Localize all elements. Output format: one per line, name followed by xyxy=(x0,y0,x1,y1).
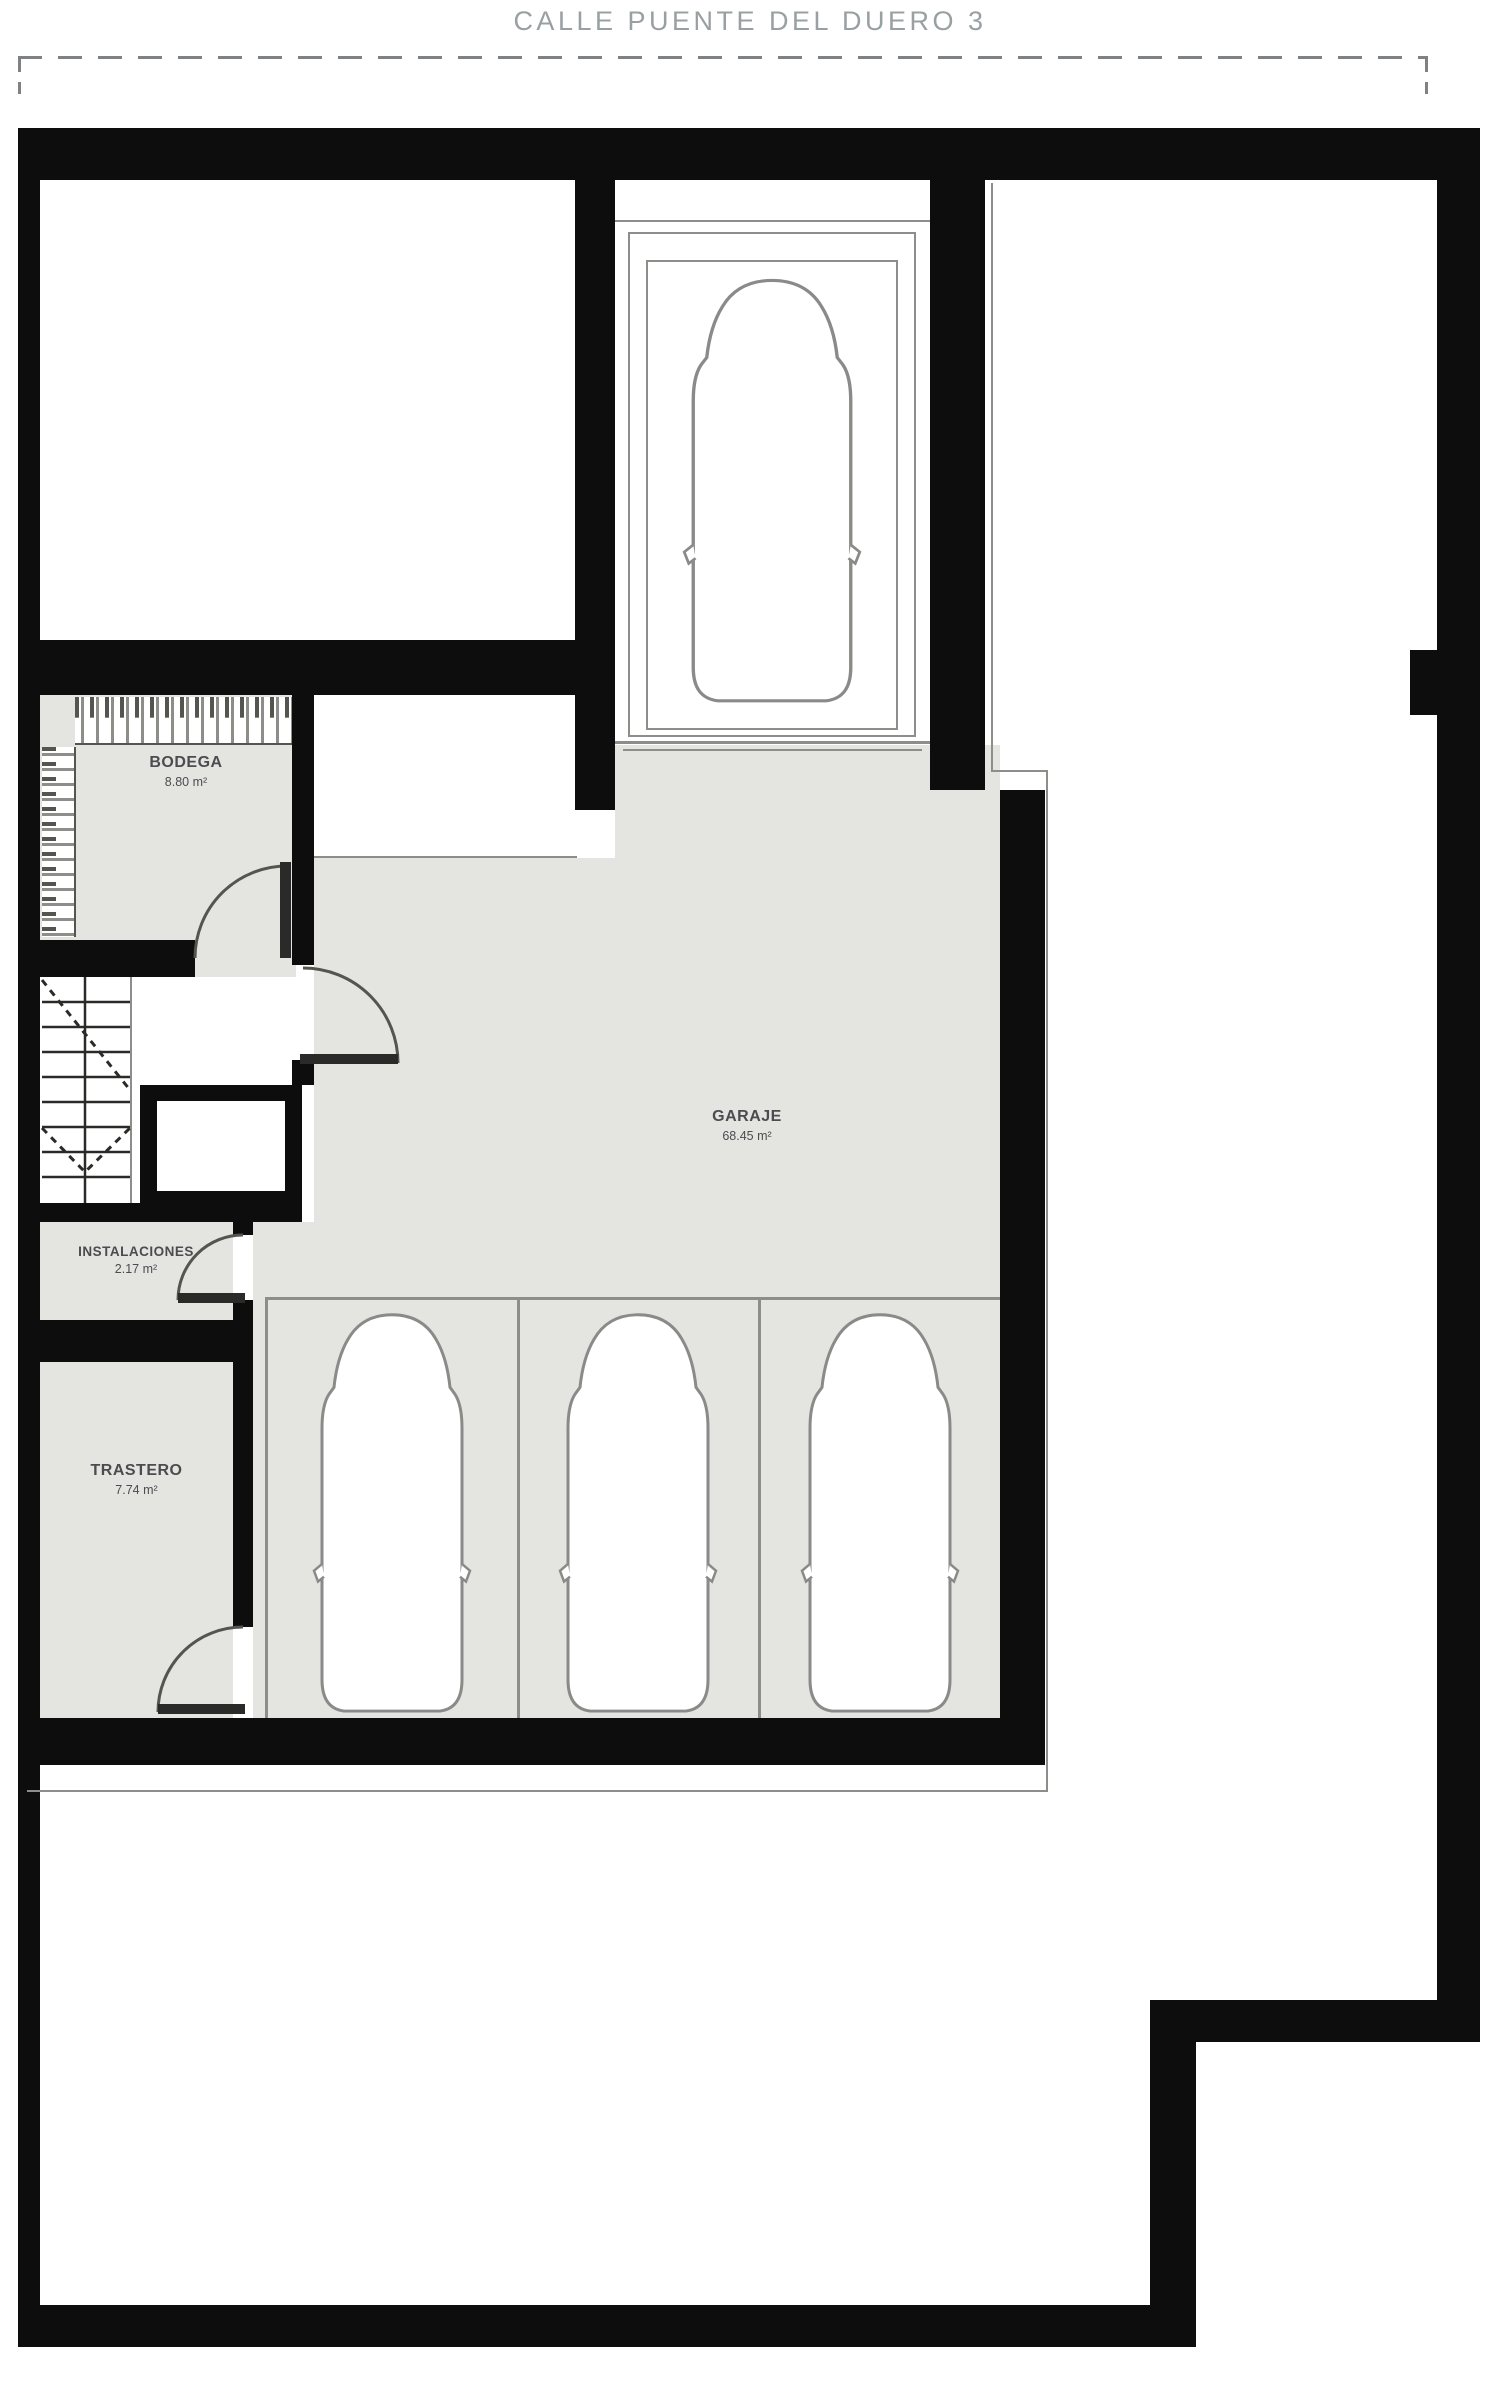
patio-boundary-line-lower xyxy=(1046,770,1048,1792)
ramp-street-edge-line xyxy=(615,220,930,222)
car-parking-bay-3 xyxy=(800,1303,960,1715)
instalaciones-area: 2.17 m² xyxy=(36,1261,236,1278)
wall-right-step xyxy=(1410,650,1440,715)
garaje-label: GARAJE 68.45 m² xyxy=(597,1106,897,1144)
bodega-area: 8.80 m² xyxy=(75,774,297,791)
wall-bottom xyxy=(18,2305,1196,2347)
wall-bodega-top xyxy=(40,640,615,695)
trastero-label: TRASTERO 7.74 m² xyxy=(40,1460,233,1498)
trastero-name: TRASTERO xyxy=(40,1460,233,1482)
wall-garage-right xyxy=(1000,790,1045,1765)
staircase xyxy=(42,977,130,1203)
wall-hall-garage-stub xyxy=(292,1060,314,1085)
wall-right xyxy=(1437,128,1480,2042)
light-well-bottom-line xyxy=(314,856,577,858)
wall-ramp-left xyxy=(575,180,615,810)
wall-instalaciones-right-upper xyxy=(233,1222,253,1235)
parking-bay-left-line xyxy=(265,1297,268,1718)
garage-floor-upper xyxy=(314,858,1000,979)
wall-garage-bottom xyxy=(18,1718,1045,1765)
trastero-floor xyxy=(40,1362,233,1718)
parking-bays-top-line xyxy=(265,1297,1000,1300)
wall-top xyxy=(18,128,1480,180)
wall-left xyxy=(18,128,40,2347)
ramp-bottom-edge-line xyxy=(615,741,930,744)
car-parking-bay-2 xyxy=(558,1303,718,1715)
garaje-area: 68.45 m² xyxy=(597,1128,897,1145)
street-boundary-left-tick xyxy=(18,58,21,94)
car-on-ramp xyxy=(682,268,862,705)
car-parking-bay-1 xyxy=(312,1303,472,1715)
trastero-area: 7.74 m² xyxy=(40,1482,233,1499)
elevator-shaft-interior xyxy=(157,1101,285,1191)
wine-rack-top-icon xyxy=(75,697,292,745)
bodega-label: BODEGA 8.80 m² xyxy=(75,752,297,790)
stairs-right-edge-line xyxy=(130,977,132,1203)
street-boundary-dashed-line xyxy=(18,56,1428,59)
instalaciones-name: INSTALACIONES xyxy=(36,1243,236,1261)
wall-instalaciones-bottom xyxy=(40,1320,253,1362)
wine-rack-left-icon xyxy=(42,747,76,937)
patio-boundary-line-jog xyxy=(991,770,1048,772)
wall-notch-vertical xyxy=(1150,2042,1196,2305)
wall-instalaciones-right-lower xyxy=(233,1300,253,1320)
street-name-title: CALLE PUENTE DEL DUERO 3 xyxy=(0,6,1500,37)
bodega-name: BODEGA xyxy=(75,752,297,774)
street-boundary-right-tick xyxy=(1425,58,1428,94)
parking-bay-divider-1 xyxy=(517,1297,520,1718)
parking-bay-divider-2 xyxy=(758,1297,761,1718)
garaje-name: GARAJE xyxy=(597,1106,897,1128)
wall-bodega-bottom xyxy=(40,940,195,977)
wall-trastero-right xyxy=(233,1362,253,1627)
patio-boundary-line-upper xyxy=(991,183,993,772)
wall-bodega-right xyxy=(292,640,314,965)
ramp-bottom-edge-line-2 xyxy=(623,749,922,751)
floorplan-canvas: CALLE PUENTE DEL DUERO 3 xyxy=(0,0,1500,2394)
instalaciones-label: INSTALACIONES 2.17 m² xyxy=(36,1243,236,1278)
wall-ramp-right xyxy=(930,180,985,790)
wall-notch-horizontal xyxy=(1150,2000,1480,2042)
lower-court-boundary-line xyxy=(27,1790,1048,1792)
